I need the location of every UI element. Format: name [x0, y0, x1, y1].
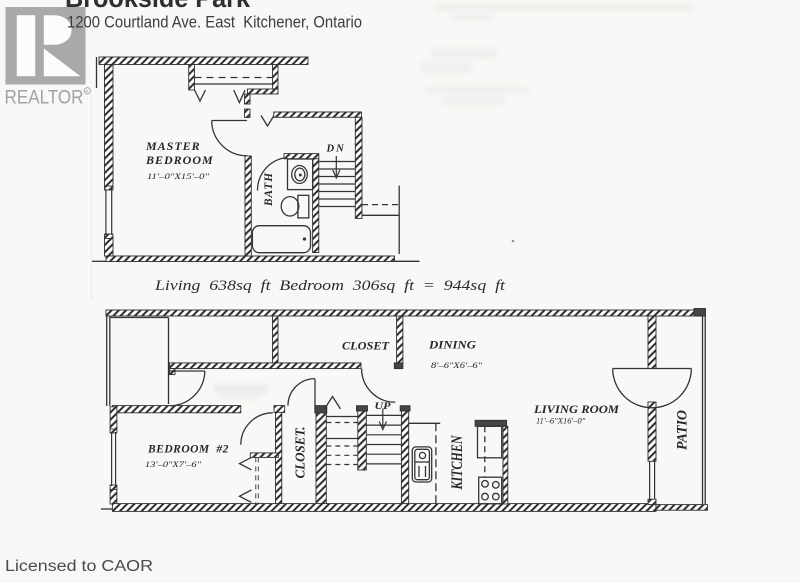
svg-text:LIVING ROOM: LIVING ROOM — [533, 404, 620, 416]
svg-text:8'–6"X6'–6": 8'–6"X6'–6" — [431, 360, 483, 370]
svg-text:11'–0"X15'–0": 11'–0"X15'–0" — [147, 171, 210, 181]
svg-text:Living 638sq ft Bedroom 30: Living 638sq ft Bedroom 306sq ft = 944sq… — [154, 278, 506, 294]
svg-text:CLOSET: CLOSET — [342, 341, 390, 353]
svg-text:1200 Courtland Ave. East Kitc: 1200 Courtland Ave. East Kitchener, Onta… — [67, 13, 362, 32]
svg-text:11'–6"X16'–0": 11'–6"X16'–0" — [536, 416, 586, 426]
svg-text:R: R — [85, 89, 89, 95]
svg-text:BEDROOM: BEDROOM — [145, 153, 214, 167]
svg-text:DN: DN — [326, 144, 346, 155]
svg-text:13'–0"X7'–6": 13'–0"X7'–6" — [145, 459, 202, 469]
svg-text:PATIO: PATIO — [675, 409, 691, 450]
svg-text:REALTOR: REALTOR — [5, 88, 84, 109]
svg-text:CLOSET.: CLOSET. — [293, 427, 308, 479]
svg-text:KITCHEN: KITCHEN — [449, 435, 466, 490]
svg-text:Licensed to CAOR: Licensed to CAOR — [5, 558, 153, 575]
svg-text:DINING: DINING — [428, 340, 477, 352]
svg-text:BATH: BATH — [263, 172, 275, 207]
svg-text:MASTER: MASTER — [145, 139, 201, 153]
svg-text:BEDROOM #2: BEDROOM #2 — [147, 444, 229, 456]
svg-text:UP: UP — [375, 401, 392, 412]
svg-text:Brookside Park: Brookside Park — [65, 0, 251, 13]
